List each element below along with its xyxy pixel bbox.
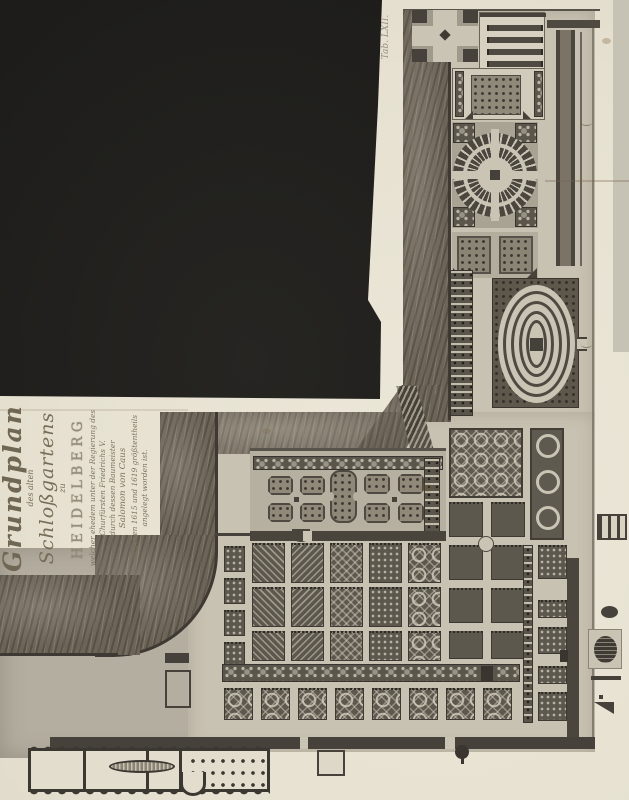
- cartouche-subline: zu: [58, 398, 68, 578]
- east-garden-wall: [567, 558, 579, 744]
- cartouche-dedication-line: angelegt worden ist.: [140, 398, 150, 578]
- oval-pond: [594, 636, 617, 663]
- basin-stem: [461, 758, 464, 764]
- east-terrace-bed: [538, 692, 567, 721]
- forecourt-steps: [165, 653, 189, 663]
- south-wall-gate: [445, 737, 455, 749]
- wall-stub: [591, 676, 621, 680]
- small-court-outline: [165, 670, 191, 708]
- east-terrace-bed: [538, 666, 567, 684]
- pond-terrace-pad: [588, 629, 622, 669]
- round-basin: [455, 745, 469, 759]
- cartouche-title-main: Grundplan: [0, 398, 26, 578]
- wall-stair-block: [560, 650, 568, 662]
- marker-dot: [599, 695, 603, 699]
- fold-crease: [0, 409, 188, 411]
- foxing-stain: [420, 484, 434, 492]
- foxing-stain: [262, 428, 271, 434]
- east-terrace-bed: [538, 545, 567, 579]
- title-cartouche: Grundplan des alten Schloßgartens zu HEI…: [0, 398, 152, 578]
- castle-building-footprint: [28, 748, 270, 792]
- stair-comb-structure: [597, 514, 627, 540]
- east-terrace-bed: [538, 600, 567, 618]
- small-building-footprint: [317, 750, 345, 776]
- cartouche-place-name: HEIDELBERG: [68, 398, 88, 578]
- foxing-stain: [602, 38, 611, 44]
- cartouche-dedication-line: Churfürsten Friedrichs V.: [98, 398, 108, 578]
- fold-crease: [545, 180, 629, 182]
- cartouche-dedication-line: zwischen 1615 und 1619 größtentheils: [130, 398, 140, 578]
- pencil-mark: [581, 342, 592, 348]
- cartouche-dedication-line: welcher ehedem unter der Regierung des: [88, 398, 98, 578]
- south-wall-gate: [300, 737, 308, 749]
- building-apse: [180, 772, 206, 796]
- scanned-plan-page: Grundplan des alten Schloßgartens zu HEI…: [0, 0, 629, 800]
- cartouche-architect-name: Salomon von Caus: [118, 398, 130, 578]
- plate-number-note: Tab. LXII.: [381, 8, 407, 66]
- canal-pond: [109, 760, 175, 773]
- pencil-mark: [581, 120, 592, 126]
- building-south-lobes: [28, 789, 270, 797]
- cartouche-title-script: Schloßgartens: [37, 398, 59, 578]
- building-wall: [83, 751, 86, 789]
- small-oval-basin: [601, 606, 618, 618]
- cartouche-dedication-line: durch dessen Baumeister: [108, 398, 118, 578]
